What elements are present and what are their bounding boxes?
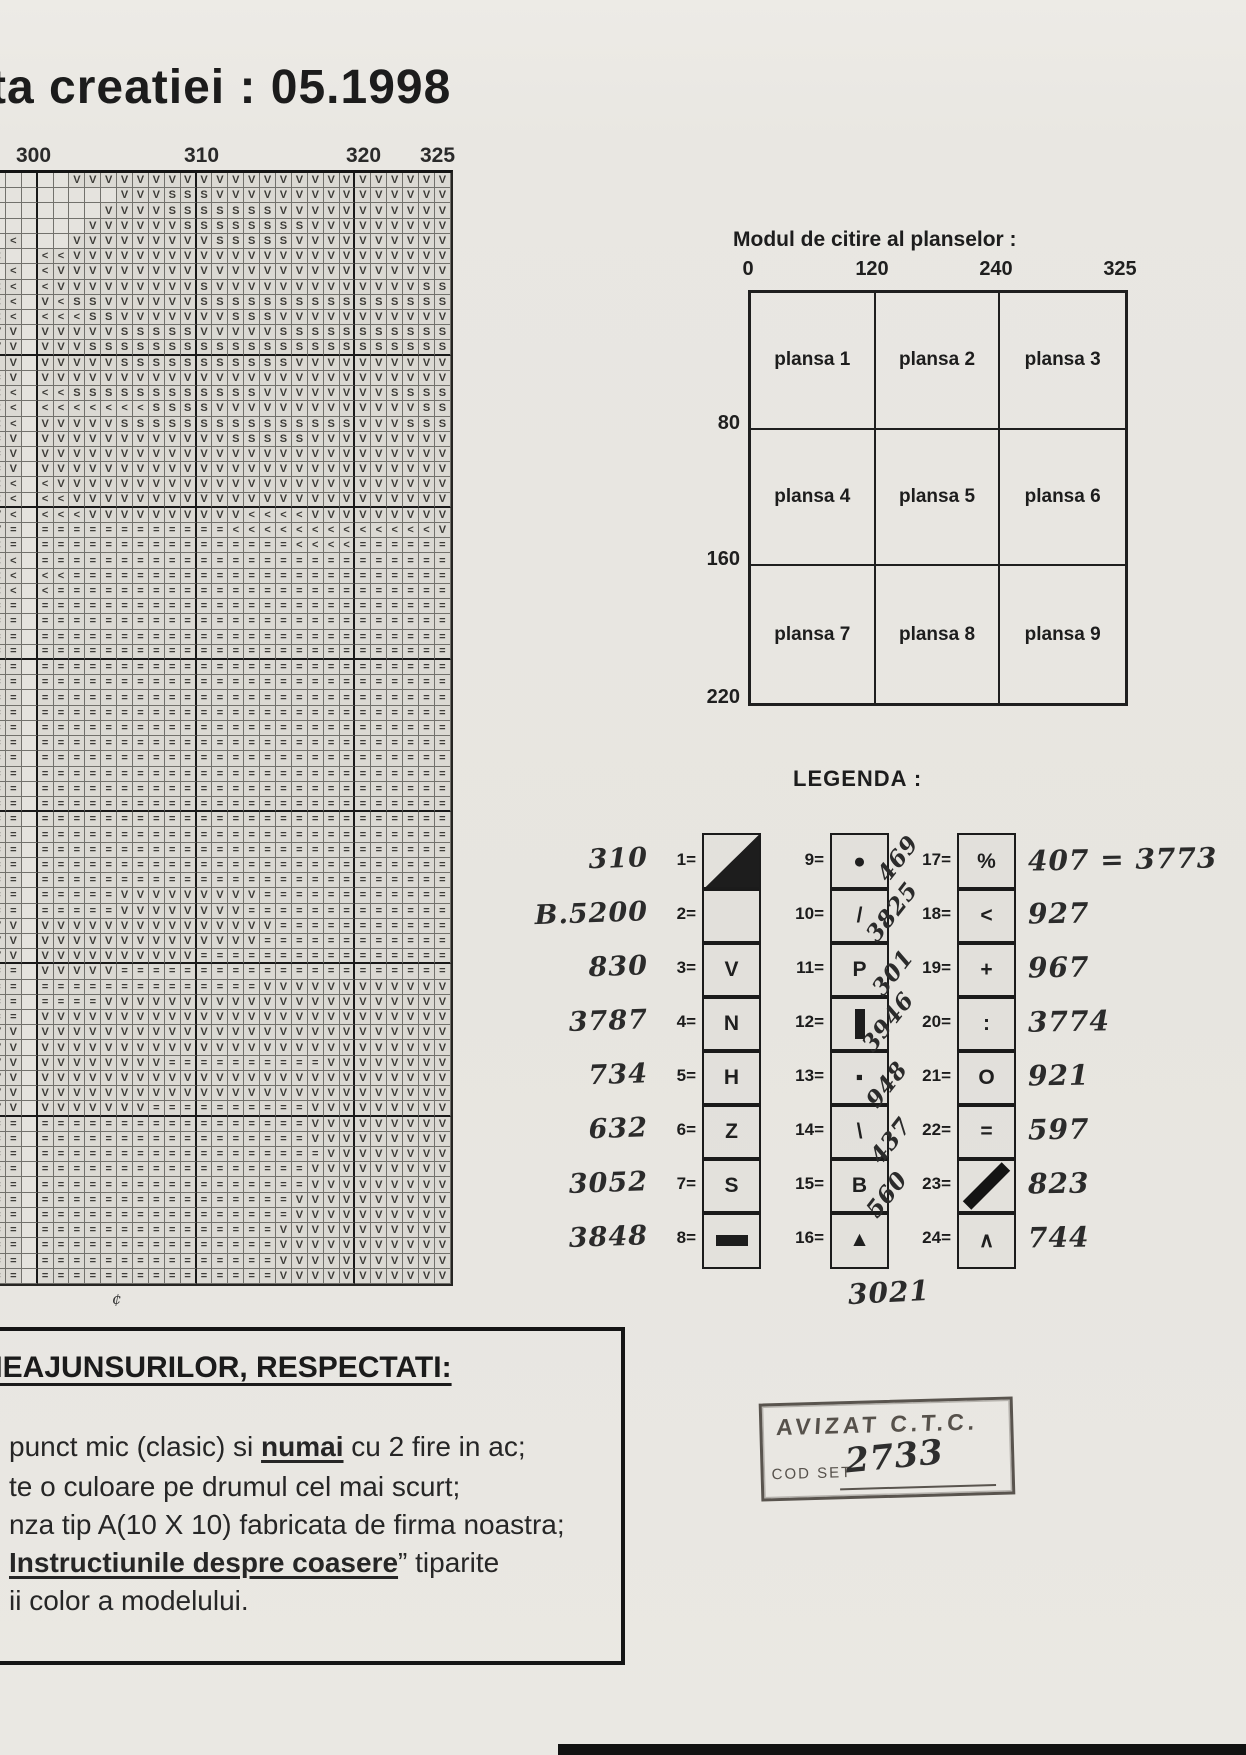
pattern-cell: = bbox=[54, 645, 70, 660]
pattern-cell: V bbox=[244, 325, 260, 340]
pattern-cell: S bbox=[228, 219, 244, 234]
pattern-cell: = bbox=[244, 980, 260, 995]
instruction-line: te o culoare pe drumul cel mai scurt; bbox=[9, 1471, 460, 1503]
pattern-cell: V bbox=[69, 493, 85, 508]
pattern-cell: = bbox=[69, 614, 85, 629]
pattern-cell: = bbox=[324, 660, 340, 675]
pattern-cell: S bbox=[149, 386, 165, 401]
pattern-cell: = bbox=[133, 767, 149, 782]
pattern-cell: V bbox=[69, 1101, 85, 1116]
pattern-cell: = bbox=[197, 690, 213, 705]
pattern-cell: = bbox=[244, 614, 260, 629]
pattern-cell: < bbox=[355, 523, 371, 538]
pattern-cell: S bbox=[435, 340, 451, 355]
pattern-cell: V bbox=[435, 234, 451, 249]
pattern-cell: V bbox=[69, 447, 85, 462]
pattern-cell: V bbox=[355, 1086, 371, 1101]
legend-symbol-box: : bbox=[957, 995, 1016, 1053]
pattern-cell: = bbox=[355, 614, 371, 629]
pattern-cell: = bbox=[244, 767, 260, 782]
pattern-cell: V bbox=[371, 1040, 387, 1055]
pattern-cell: S bbox=[276, 356, 292, 371]
pattern-cell bbox=[22, 645, 38, 660]
pattern-cell: V bbox=[276, 386, 292, 401]
pattern-cell: < bbox=[6, 386, 22, 401]
pattern-cell bbox=[22, 310, 38, 325]
pattern-cell: V bbox=[165, 280, 181, 295]
pattern-cell: = bbox=[228, 858, 244, 873]
pattern-cell: V bbox=[324, 219, 340, 234]
pattern-cell: V bbox=[435, 1040, 451, 1055]
pattern-cell: = bbox=[403, 888, 419, 903]
pattern-cell: = bbox=[435, 797, 451, 812]
pattern-cell: = bbox=[117, 736, 133, 751]
pattern-cell: = bbox=[260, 1238, 276, 1253]
pattern-cell: S bbox=[212, 295, 228, 310]
pattern-cell: = bbox=[101, 1238, 117, 1253]
pattern-cell: V bbox=[54, 1010, 70, 1025]
pattern-cell: V bbox=[387, 447, 403, 462]
pattern-cell: V bbox=[228, 371, 244, 386]
pattern-cell: = bbox=[387, 858, 403, 873]
pattern-cell: V bbox=[85, 371, 101, 386]
pattern-cell: V bbox=[340, 1010, 356, 1025]
pattern-cell: V bbox=[276, 462, 292, 477]
pattern-cell: = bbox=[244, 538, 260, 553]
pattern-cell: = bbox=[117, 812, 133, 827]
pattern-cell: = bbox=[308, 706, 324, 721]
pattern-cell: = bbox=[117, 584, 133, 599]
instruction-text: nza tip A(10 X 10) fabricata de firma no… bbox=[9, 1509, 565, 1540]
pattern-cell: = bbox=[54, 1238, 70, 1253]
pattern-cell: = bbox=[419, 767, 435, 782]
pattern-cell: V bbox=[69, 280, 85, 295]
pattern-cell: = bbox=[435, 858, 451, 873]
pattern-cell: = bbox=[149, 1193, 165, 1208]
pattern-cell: S bbox=[228, 356, 244, 371]
pattern-cell bbox=[22, 706, 38, 721]
pattern-cell: V bbox=[117, 219, 133, 234]
pattern-cell: = bbox=[308, 919, 324, 934]
pattern-cell: = bbox=[292, 843, 308, 858]
pattern-cell: S bbox=[387, 340, 403, 355]
pattern-cell bbox=[22, 1238, 38, 1253]
pattern-cell bbox=[22, 751, 38, 766]
pattern-cell: V bbox=[276, 477, 292, 492]
pattern-cell: = bbox=[69, 630, 85, 645]
pattern-cell: = bbox=[355, 690, 371, 705]
pattern-cell: V bbox=[6, 1025, 22, 1040]
pattern-cell: = bbox=[244, 1162, 260, 1177]
pattern-cell: = bbox=[85, 1147, 101, 1162]
pattern-cell: V bbox=[292, 1223, 308, 1238]
pattern-cell: = bbox=[212, 675, 228, 690]
pattern-cell: V bbox=[133, 888, 149, 903]
pattern-cell: = bbox=[117, 782, 133, 797]
pattern-cell: = bbox=[403, 873, 419, 888]
pattern-cell: = bbox=[324, 797, 340, 812]
pattern-cell: V bbox=[419, 1223, 435, 1238]
pattern-cell: V bbox=[133, 371, 149, 386]
pattern-cell: V bbox=[419, 995, 435, 1010]
pattern-grid-column-label: 320 bbox=[346, 144, 381, 168]
pattern-cell: V bbox=[117, 310, 133, 325]
pattern-cell: V bbox=[340, 1132, 356, 1147]
pattern-cell: V bbox=[324, 371, 340, 386]
pattern-cell: = bbox=[181, 767, 197, 782]
pattern-cell: S bbox=[149, 356, 165, 371]
pattern-cell: = bbox=[165, 797, 181, 812]
pattern-cell: = bbox=[260, 584, 276, 599]
pattern-cell: = bbox=[197, 1147, 213, 1162]
pattern-cell: V bbox=[340, 477, 356, 492]
pattern-cell: V bbox=[403, 219, 419, 234]
pattern-cell: V bbox=[292, 234, 308, 249]
pattern-cell: V bbox=[197, 1010, 213, 1025]
pattern-cell: < bbox=[340, 523, 356, 538]
pattern-cell: V bbox=[54, 340, 70, 355]
pattern-cell: S bbox=[371, 340, 387, 355]
pattern-cell: = bbox=[69, 980, 85, 995]
pattern-cell: = bbox=[435, 843, 451, 858]
pattern-cell: V bbox=[149, 249, 165, 264]
pattern-cell: S bbox=[387, 295, 403, 310]
pattern-cell: < bbox=[6, 553, 22, 568]
pattern-cell: V bbox=[228, 1040, 244, 1055]
pattern-cell: V bbox=[324, 234, 340, 249]
pattern-cell: = bbox=[6, 706, 22, 721]
pattern-cell: = bbox=[340, 584, 356, 599]
pattern-cell: S bbox=[165, 386, 181, 401]
pattern-cell: V bbox=[133, 432, 149, 447]
pattern-cell bbox=[22, 508, 38, 523]
pattern-cell: V bbox=[181, 904, 197, 919]
pattern-cell: = bbox=[197, 1223, 213, 1238]
pattern-cell: = bbox=[101, 721, 117, 736]
pattern-cell: < bbox=[371, 523, 387, 538]
pattern-cell: = bbox=[308, 873, 324, 888]
pattern-cell: = bbox=[133, 797, 149, 812]
pattern-cell: = bbox=[101, 1162, 117, 1177]
pattern-cell: = bbox=[276, 812, 292, 827]
pattern-cell: = bbox=[117, 553, 133, 568]
pattern-cell: = bbox=[276, 767, 292, 782]
pattern-cell: S bbox=[292, 295, 308, 310]
pattern-cell: V bbox=[244, 264, 260, 279]
pattern-cell: = bbox=[244, 1223, 260, 1238]
pattern-cell: V bbox=[85, 432, 101, 447]
pattern-cell: V bbox=[292, 1208, 308, 1223]
pattern-cell: = bbox=[419, 843, 435, 858]
pattern-cell: V bbox=[435, 264, 451, 279]
pattern-cell: V bbox=[371, 280, 387, 295]
pattern-cell: S bbox=[165, 340, 181, 355]
instruction-text: ii color a modelului. bbox=[9, 1585, 249, 1616]
pattern-cell: = bbox=[38, 1254, 54, 1269]
pattern-cell: V bbox=[69, 934, 85, 949]
pattern-cell: = bbox=[403, 721, 419, 736]
pattern-cell bbox=[22, 249, 38, 264]
pattern-cell: = bbox=[292, 1056, 308, 1071]
pattern-cell: = bbox=[101, 1132, 117, 1147]
pattern-cell bbox=[54, 173, 70, 188]
legend-symbol-box bbox=[702, 1211, 761, 1269]
pattern-cell: = bbox=[292, 858, 308, 873]
pattern-cell: = bbox=[435, 553, 451, 568]
pattern-cell: = bbox=[435, 934, 451, 949]
pattern-cell: V bbox=[355, 493, 371, 508]
pattern-cell: = bbox=[6, 1162, 22, 1177]
pattern-cell: = bbox=[181, 569, 197, 584]
pattern-cell: = bbox=[6, 858, 22, 873]
pattern-cell: = bbox=[212, 782, 228, 797]
pattern-cell: = bbox=[260, 782, 276, 797]
plansa-cell: plansa 4 bbox=[751, 430, 876, 567]
pattern-cell: S bbox=[165, 203, 181, 218]
pattern-cell: S bbox=[292, 325, 308, 340]
pattern-cell: = bbox=[292, 736, 308, 751]
pattern-cell: V bbox=[101, 417, 117, 432]
pattern-cell: = bbox=[101, 1254, 117, 1269]
pattern-cell: = bbox=[228, 584, 244, 599]
pattern-cell: V bbox=[197, 477, 213, 492]
pattern-cell: = bbox=[85, 782, 101, 797]
pattern-cell: = bbox=[276, 645, 292, 660]
pattern-cell: S bbox=[324, 325, 340, 340]
pattern-cell: V bbox=[276, 203, 292, 218]
pattern-cell: < bbox=[260, 523, 276, 538]
pattern-cell: = bbox=[308, 964, 324, 979]
pattern-cell: = bbox=[276, 934, 292, 949]
pattern-cell: = bbox=[181, 1132, 197, 1147]
pattern-cell: = bbox=[212, 614, 228, 629]
pattern-cell: = bbox=[292, 1117, 308, 1132]
pattern-cell: = bbox=[133, 1177, 149, 1192]
pattern-cell: V bbox=[435, 1010, 451, 1025]
plansa-cell: plansa 2 bbox=[876, 293, 1001, 430]
pattern-cell: = bbox=[244, 812, 260, 827]
pattern-cell: V bbox=[260, 371, 276, 386]
pattern-cell: = bbox=[117, 614, 133, 629]
pattern-cell: V bbox=[340, 264, 356, 279]
pattern-cell: < bbox=[54, 386, 70, 401]
pattern-cell: = bbox=[292, 1162, 308, 1177]
pattern-cell: V bbox=[355, 1193, 371, 1208]
pattern-cell: V bbox=[85, 417, 101, 432]
pattern-cell: V bbox=[54, 964, 70, 979]
pattern-cell: = bbox=[212, 812, 228, 827]
pattern-cell: V bbox=[181, 493, 197, 508]
pattern-cell: = bbox=[165, 630, 181, 645]
pattern-cell: = bbox=[117, 843, 133, 858]
pattern-cell: < bbox=[324, 538, 340, 553]
pattern-cell: = bbox=[101, 858, 117, 873]
pattern-cell: V bbox=[260, 995, 276, 1010]
pattern-cell: = bbox=[387, 843, 403, 858]
pattern-cell: V bbox=[38, 417, 54, 432]
pattern-cell: = bbox=[6, 1269, 22, 1284]
pattern-cell: V bbox=[133, 173, 149, 188]
pattern-cell: S bbox=[276, 295, 292, 310]
pattern-cell: V bbox=[308, 1162, 324, 1177]
pattern-cell: V bbox=[292, 264, 308, 279]
pattern-cell: V bbox=[371, 371, 387, 386]
pattern-cell: = bbox=[419, 706, 435, 721]
pattern-cell bbox=[22, 812, 38, 827]
pattern-cell: V bbox=[308, 1254, 324, 1269]
pattern-cell: = bbox=[228, 782, 244, 797]
pattern-cell: V bbox=[403, 1132, 419, 1147]
pattern-cell: = bbox=[181, 645, 197, 660]
pattern-cell: = bbox=[292, 812, 308, 827]
pattern-cell: = bbox=[308, 1056, 324, 1071]
pattern-cell: V bbox=[435, 1117, 451, 1132]
pattern-cell: = bbox=[69, 553, 85, 568]
pattern-cell: V bbox=[419, 234, 435, 249]
pattern-cell: = bbox=[419, 645, 435, 660]
pattern-cell: = bbox=[212, 523, 228, 538]
pattern-cell: = bbox=[276, 919, 292, 934]
pattern-cell: V bbox=[6, 919, 22, 934]
pattern-cell: = bbox=[308, 782, 324, 797]
pattern-cell: V bbox=[260, 188, 276, 203]
pattern-cell: V bbox=[133, 934, 149, 949]
pattern-cell: = bbox=[181, 843, 197, 858]
pattern-cell: = bbox=[181, 523, 197, 538]
pattern-cell: V bbox=[403, 432, 419, 447]
pattern-cell: = bbox=[340, 812, 356, 827]
pattern-cell: S bbox=[117, 386, 133, 401]
pattern-cell: = bbox=[260, 660, 276, 675]
pattern-cell: S bbox=[371, 295, 387, 310]
pattern-cell: = bbox=[244, 721, 260, 736]
pattern-cell: = bbox=[181, 736, 197, 751]
pattern-cell: V bbox=[212, 401, 228, 416]
pattern-cell: = bbox=[197, 523, 213, 538]
pattern-cell: V bbox=[276, 447, 292, 462]
pattern-cell: V bbox=[133, 203, 149, 218]
pattern-cell: = bbox=[197, 751, 213, 766]
pattern-cell: V bbox=[149, 219, 165, 234]
pattern-cell: = bbox=[355, 873, 371, 888]
pattern-cell: = bbox=[38, 1223, 54, 1238]
pattern-cell: V bbox=[419, 310, 435, 325]
pattern-cell bbox=[22, 934, 38, 949]
pattern-cell: = bbox=[38, 736, 54, 751]
pattern-cell: V bbox=[244, 280, 260, 295]
pattern-cell bbox=[22, 493, 38, 508]
instruction-line: punct mic (clasic) si numai cu 2 fire in… bbox=[9, 1431, 526, 1463]
pattern-cell: = bbox=[403, 538, 419, 553]
pattern-cell: = bbox=[308, 858, 324, 873]
pattern-cell: V bbox=[292, 203, 308, 218]
pattern-cell: = bbox=[228, 949, 244, 964]
pattern-cell: V bbox=[387, 1056, 403, 1071]
pattern-cell: V bbox=[340, 203, 356, 218]
pattern-cell: V bbox=[197, 325, 213, 340]
pattern-cell bbox=[22, 1101, 38, 1116]
pattern-cell: = bbox=[197, 538, 213, 553]
pattern-cell: = bbox=[308, 675, 324, 690]
pattern-cell: = bbox=[435, 675, 451, 690]
pattern-cell: V bbox=[117, 432, 133, 447]
pattern-cell: = bbox=[133, 645, 149, 660]
legend-handwritten-code: 927 bbox=[1028, 896, 1090, 930]
pattern-cell: = bbox=[387, 538, 403, 553]
pattern-cell: = bbox=[419, 904, 435, 919]
pattern-cell: = bbox=[292, 751, 308, 766]
pattern-cell: S bbox=[244, 340, 260, 355]
pattern-cell: = bbox=[228, 1147, 244, 1162]
pattern-cell: V bbox=[181, 432, 197, 447]
pattern-cell bbox=[22, 340, 38, 355]
pattern-cell: V bbox=[419, 1025, 435, 1040]
pattern-cell: V bbox=[260, 980, 276, 995]
pattern-cell: V bbox=[419, 980, 435, 995]
pattern-cell: V bbox=[355, 1056, 371, 1071]
pattern-cell: = bbox=[197, 1208, 213, 1223]
pattern-cell: = bbox=[165, 964, 181, 979]
pattern-cell: = bbox=[387, 888, 403, 903]
pattern-cell: = bbox=[212, 1208, 228, 1223]
pattern-cell: S bbox=[324, 417, 340, 432]
pattern-cell: = bbox=[355, 751, 371, 766]
pattern-cell: = bbox=[38, 1193, 54, 1208]
pattern-cell: = bbox=[324, 873, 340, 888]
pattern-cell: S bbox=[117, 417, 133, 432]
pattern-cell: = bbox=[165, 553, 181, 568]
pattern-cell: = bbox=[101, 736, 117, 751]
pattern-cell: = bbox=[101, 553, 117, 568]
pattern-cell: = bbox=[38, 858, 54, 873]
pattern-cell: = bbox=[6, 888, 22, 903]
pattern-cell: = bbox=[403, 569, 419, 584]
plansa-axis-label: 120 bbox=[855, 258, 888, 281]
pattern-cell: V bbox=[371, 1177, 387, 1192]
pattern-cell bbox=[22, 1223, 38, 1238]
pattern-cell: = bbox=[308, 645, 324, 660]
pattern-cell: V bbox=[197, 1086, 213, 1101]
pattern-cell: S bbox=[181, 401, 197, 416]
pattern-cell: S bbox=[197, 401, 213, 416]
pattern-cell: = bbox=[228, 1177, 244, 1192]
pattern-cell: = bbox=[228, 1254, 244, 1269]
pattern-cell: = bbox=[54, 812, 70, 827]
pattern-cell: < bbox=[101, 401, 117, 416]
plansa-cell: plansa 6 bbox=[1000, 430, 1125, 567]
pattern-cell: = bbox=[212, 553, 228, 568]
pattern-cell: = bbox=[85, 751, 101, 766]
pattern-cell: V bbox=[324, 264, 340, 279]
pattern-cell bbox=[22, 614, 38, 629]
pattern-cell: = bbox=[228, 721, 244, 736]
pattern-cell: V bbox=[260, 493, 276, 508]
pattern-cell: V bbox=[403, 173, 419, 188]
instruction-text-emphasis: Instructiunile despre coasere bbox=[9, 1547, 398, 1578]
pattern-cell: = bbox=[244, 1132, 260, 1147]
pattern-cell: V bbox=[165, 477, 181, 492]
pattern-cell: = bbox=[6, 843, 22, 858]
pattern-cell: = bbox=[324, 919, 340, 934]
pattern-cell: = bbox=[117, 1162, 133, 1177]
pattern-cell: V bbox=[435, 995, 451, 1010]
pattern-cell: = bbox=[355, 630, 371, 645]
pattern-cell: V bbox=[117, 1101, 133, 1116]
pattern-cell: V bbox=[419, 1208, 435, 1223]
pattern-cell: V bbox=[355, 1040, 371, 1055]
pattern-cell: V bbox=[308, 1025, 324, 1040]
pattern-cell: V bbox=[54, 477, 70, 492]
